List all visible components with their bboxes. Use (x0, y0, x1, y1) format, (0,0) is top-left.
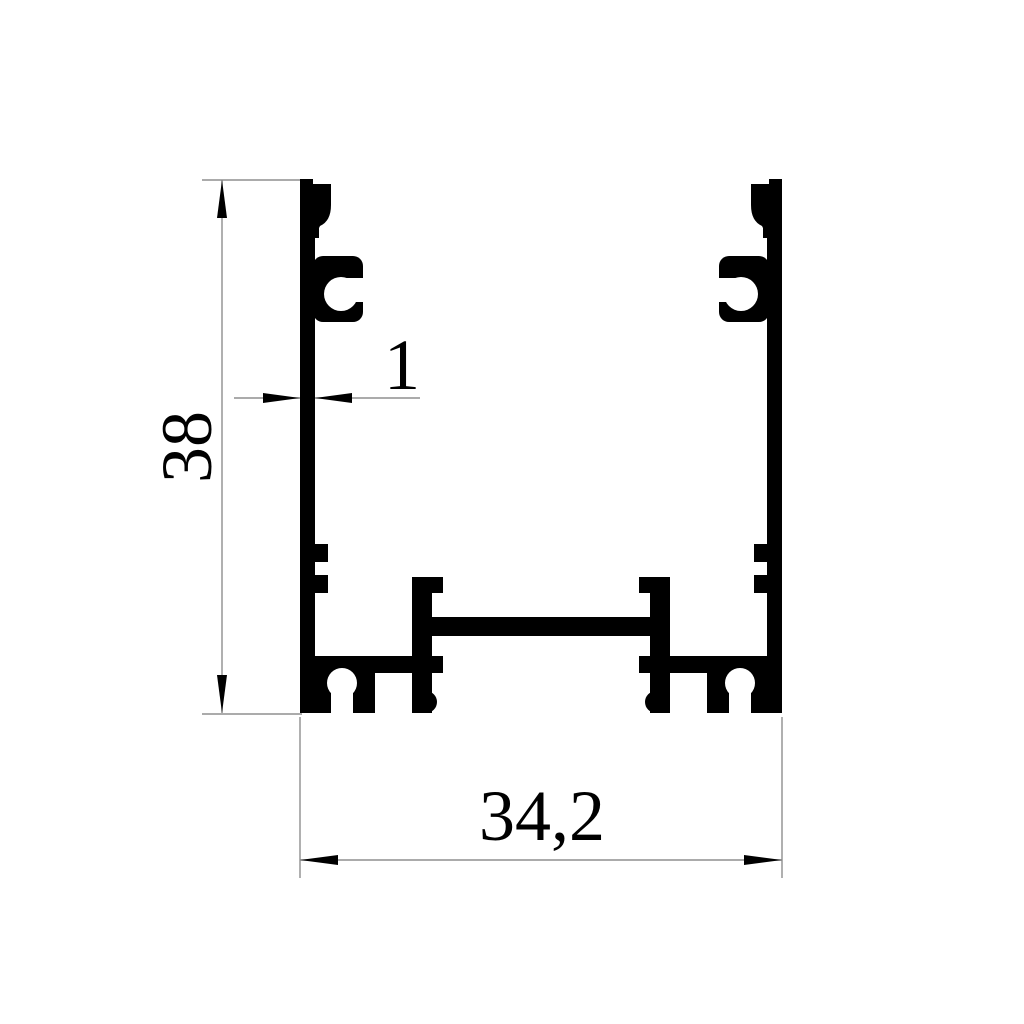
inner-post-foot (415, 691, 437, 713)
keyhole-slot (331, 690, 353, 717)
profile-crossbar (432, 617, 650, 636)
profile-rib-lower (313, 575, 328, 593)
profile-drawing: 38 1 34,2 (0, 0, 1024, 1024)
drawing-canvas: 38 1 34,2 (0, 0, 1024, 1024)
drawing-background (0, 0, 1024, 1024)
inner-post-top-lug (412, 577, 443, 593)
dimension-label-height: 38 (147, 411, 227, 483)
dimension-label-wall-thickness: 1 (384, 325, 420, 405)
profile-rib-upper (313, 544, 328, 562)
screw-clip-mouth (341, 278, 368, 302)
dimension-label-width: 34,2 (479, 776, 605, 856)
